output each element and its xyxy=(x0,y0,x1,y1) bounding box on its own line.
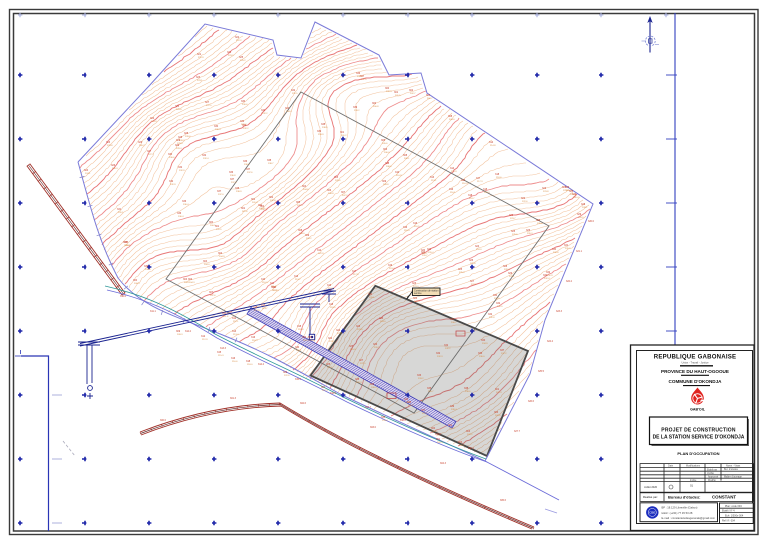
svg-text:Bureau d'études:: Bureau d'études: xyxy=(668,495,701,500)
svg-text:200.8: 200.8 xyxy=(373,106,379,108)
svg-text:238.6: 238.6 xyxy=(465,391,471,393)
svg-text:222.2: 222.2 xyxy=(236,40,242,42)
svg-text:227.5: 227.5 xyxy=(206,105,212,107)
svg-text:302: 302 xyxy=(409,89,414,92)
svg-text:329: 329 xyxy=(577,213,582,216)
svg-text:326: 326 xyxy=(111,164,116,167)
svg-text:325: 325 xyxy=(511,230,516,233)
svg-text:325.5: 325.5 xyxy=(538,370,545,373)
svg-text:320: 320 xyxy=(368,293,373,296)
svg-text:332: 332 xyxy=(202,154,207,157)
svg-text:314: 314 xyxy=(489,141,494,144)
svg-text:305: 305 xyxy=(334,176,339,179)
svg-text:315: 315 xyxy=(217,351,222,354)
svg-text:301: 301 xyxy=(436,438,441,441)
svg-text:330: 330 xyxy=(370,383,375,386)
svg-text:238.7: 238.7 xyxy=(268,163,274,165)
svg-text:203.8: 203.8 xyxy=(495,415,501,417)
svg-text:PLAN D'OCCUPATION: PLAN D'OCCUPATION xyxy=(677,451,719,456)
svg-text:222.6: 222.6 xyxy=(284,375,290,377)
svg-text:312: 312 xyxy=(232,317,237,320)
svg-text:237.7: 237.7 xyxy=(422,413,428,415)
svg-text:235.7: 235.7 xyxy=(428,391,434,393)
svg-text:310: 310 xyxy=(395,171,400,174)
svg-text:222.7: 222.7 xyxy=(337,333,343,335)
svg-text:309: 309 xyxy=(382,180,387,183)
svg-text:Ref N°: 004: Ref N°: 004 xyxy=(722,520,736,523)
svg-text:324: 324 xyxy=(475,245,480,248)
svg-text:231.1: 231.1 xyxy=(118,212,124,214)
svg-text:318: 318 xyxy=(246,360,251,363)
svg-text:216.3: 216.3 xyxy=(252,340,258,342)
svg-text:227.7: 227.7 xyxy=(148,154,154,156)
svg-text:313: 313 xyxy=(294,275,299,278)
svg-text:309: 309 xyxy=(176,330,181,333)
svg-text:323: 323 xyxy=(542,187,547,190)
svg-text:336: 336 xyxy=(177,212,182,215)
svg-text:303: 303 xyxy=(458,441,463,444)
svg-text:228.3: 228.3 xyxy=(356,382,362,384)
svg-text:324: 324 xyxy=(379,317,384,320)
svg-text:316: 316 xyxy=(403,226,408,229)
svg-text:Etabli: N° 4: Etabli: N° 4 xyxy=(722,510,735,513)
svg-text:209.2: 209.2 xyxy=(306,238,312,240)
svg-text:336: 336 xyxy=(243,160,248,163)
svg-text:213.7: 213.7 xyxy=(262,308,268,310)
svg-text:334: 334 xyxy=(285,107,290,110)
svg-text:220.1: 220.1 xyxy=(369,297,375,299)
svg-text:225.1: 225.1 xyxy=(327,367,333,369)
svg-text:223.7: 223.7 xyxy=(510,218,516,220)
svg-text:319.0: 319.0 xyxy=(435,433,442,436)
svg-text:325: 325 xyxy=(175,105,180,108)
svg-text:304: 304 xyxy=(188,278,193,281)
svg-text:335: 335 xyxy=(381,416,386,419)
svg-text:339: 339 xyxy=(317,130,322,133)
svg-text:REPUBLIQUE GABONAISE: REPUBLIQUE GABONAISE xyxy=(654,354,737,361)
svg-text:201.5: 201.5 xyxy=(449,428,455,430)
svg-text:235.0: 235.0 xyxy=(124,245,130,247)
svg-text:Plan: code 004: Plan: code 004 xyxy=(725,505,742,508)
svg-text:225.6: 225.6 xyxy=(512,234,518,236)
svg-text:Union - Travail - Justice: Union - Travail - Justice xyxy=(681,360,709,364)
svg-text:204.3: 204.3 xyxy=(189,282,195,284)
svg-text:304: 304 xyxy=(218,252,223,255)
svg-text:239.0: 239.0 xyxy=(145,269,151,271)
svg-text:216.1: 216.1 xyxy=(450,192,456,194)
svg-text:323: 323 xyxy=(196,76,201,79)
svg-text:225.9: 225.9 xyxy=(570,194,576,196)
svg-text:218.8: 218.8 xyxy=(298,329,304,331)
svg-text:312: 312 xyxy=(272,286,277,289)
svg-text:222.6: 222.6 xyxy=(522,201,528,203)
svg-text:311: 311 xyxy=(270,282,275,285)
svg-text:service: service xyxy=(414,292,422,295)
svg-text:235.4: 235.4 xyxy=(382,420,388,422)
svg-text:GAB'OIL: GAB'OIL xyxy=(690,408,706,412)
svg-text:332: 332 xyxy=(444,344,449,347)
svg-text:332: 332 xyxy=(261,109,266,112)
svg-text:325: 325 xyxy=(469,259,474,262)
svg-text:323.3: 323.3 xyxy=(556,310,563,313)
svg-text:230.7: 230.7 xyxy=(451,322,457,324)
svg-text:320: 320 xyxy=(427,248,432,251)
svg-text:230.4: 230.4 xyxy=(215,129,221,131)
svg-text:316: 316 xyxy=(413,222,418,225)
svg-text:330: 330 xyxy=(241,100,246,103)
svg-text:238.9: 238.9 xyxy=(236,191,242,193)
svg-text:325: 325 xyxy=(326,363,331,366)
svg-text:301.3: 301.3 xyxy=(230,397,237,400)
svg-text:CONSTANT: CONSTANT xyxy=(712,495,736,500)
svg-text:213.1: 213.1 xyxy=(431,180,437,182)
svg-text:219.4: 219.4 xyxy=(389,268,395,270)
svg-text:301: 301 xyxy=(394,91,399,94)
svg-text:318: 318 xyxy=(329,303,334,306)
svg-text:227.5: 227.5 xyxy=(360,363,366,365)
svg-text:221.9: 221.9 xyxy=(198,57,204,59)
svg-text:237.0: 237.0 xyxy=(218,194,224,196)
svg-text:226.3: 226.3 xyxy=(527,233,533,235)
svg-text:338: 338 xyxy=(464,387,469,390)
svg-text:231.2: 231.2 xyxy=(565,248,571,250)
svg-text:228.4: 228.4 xyxy=(504,269,510,271)
svg-text:201.4: 201.4 xyxy=(252,202,258,204)
svg-text:Maître d'ouvrage: Maître d'ouvrage xyxy=(724,475,743,478)
svg-text:339: 339 xyxy=(144,265,149,268)
svg-text:224.9: 224.9 xyxy=(414,301,420,303)
svg-text:314: 314 xyxy=(450,167,455,170)
svg-text:223.8: 223.8 xyxy=(543,191,549,193)
svg-text:232.5: 232.5 xyxy=(292,93,298,95)
svg-text:316: 316 xyxy=(231,357,236,360)
svg-text:201.3: 201.3 xyxy=(496,392,502,394)
svg-text:330: 330 xyxy=(450,318,455,321)
svg-text:220.1: 220.1 xyxy=(296,350,302,352)
svg-text:324.4: 324.4 xyxy=(547,340,554,343)
svg-text:205.0: 205.0 xyxy=(297,205,303,207)
svg-text:320.0: 320.0 xyxy=(588,220,595,223)
svg-text:Modifié: Modifié xyxy=(708,479,716,482)
svg-text:332: 332 xyxy=(169,180,174,183)
svg-text:E-mail : constantetudesgeneral: E-mail : constantetudesgenerale@gmail.co… xyxy=(662,516,716,520)
svg-text:322: 322 xyxy=(328,337,333,340)
svg-text:223.0: 223.0 xyxy=(357,329,363,331)
svg-text:326: 326 xyxy=(373,343,378,346)
svg-text:328: 328 xyxy=(184,132,189,135)
svg-text:206.0: 206.0 xyxy=(384,152,390,154)
svg-text:308: 308 xyxy=(448,115,453,118)
svg-text:332: 332 xyxy=(496,302,501,305)
svg-text:338: 338 xyxy=(267,159,272,162)
svg-text:302.6: 302.6 xyxy=(300,402,307,405)
svg-text:BP : 18.129 Libreville (Gabo: BP : 18.129 Libreville (Gabon) xyxy=(662,505,698,509)
svg-text:217.3: 217.3 xyxy=(477,181,483,183)
svg-text:326: 326 xyxy=(526,229,531,232)
svg-text:202.7: 202.7 xyxy=(410,93,416,95)
svg-text:Date: Date xyxy=(668,465,674,468)
svg-text:214.8: 214.8 xyxy=(490,145,496,147)
svg-text:232.9: 232.9 xyxy=(170,184,176,186)
svg-text:324: 324 xyxy=(150,117,155,120)
svg-text:208.0: 208.0 xyxy=(449,119,455,121)
svg-text:224.1: 224.1 xyxy=(85,173,91,175)
svg-text:316.6: 316.6 xyxy=(330,392,337,395)
svg-text:331: 331 xyxy=(564,244,569,247)
svg-text:300: 300 xyxy=(385,87,390,90)
svg-text:Vérifié: Vérifié xyxy=(707,472,714,475)
svg-text:331: 331 xyxy=(117,208,122,211)
svg-text:212.9: 212.9 xyxy=(202,339,208,341)
svg-text:207.2: 207.2 xyxy=(342,195,348,197)
svg-text:300: 300 xyxy=(372,102,377,105)
svg-text:335: 335 xyxy=(427,387,432,390)
svg-text:320: 320 xyxy=(308,336,313,339)
svg-text:323: 323 xyxy=(227,51,232,54)
svg-text:229.0: 229.0 xyxy=(177,143,183,145)
svg-text:224.9: 224.9 xyxy=(151,121,157,123)
svg-text:330: 330 xyxy=(214,125,219,128)
svg-text:322.2: 322.2 xyxy=(566,280,573,283)
svg-text:230.6: 230.6 xyxy=(242,104,248,106)
svg-text:318: 318 xyxy=(483,188,488,191)
svg-text:338: 338 xyxy=(235,187,240,190)
svg-text:236.5: 236.5 xyxy=(357,76,363,78)
svg-text:304.3: 304.3 xyxy=(440,462,447,465)
svg-text:316: 316 xyxy=(251,336,256,339)
svg-text:232.8: 232.8 xyxy=(489,317,495,319)
svg-text:330: 330 xyxy=(552,248,557,251)
svg-text:327: 327 xyxy=(205,101,210,104)
svg-text:237.5: 237.5 xyxy=(361,79,367,81)
svg-text:Juillet 2020: Juillet 2020 xyxy=(644,485,658,489)
svg-text:302: 302 xyxy=(260,205,265,208)
svg-text:202.9: 202.9 xyxy=(261,209,267,211)
svg-text:234.7: 234.7 xyxy=(405,402,411,404)
svg-text:206.8: 206.8 xyxy=(328,193,334,195)
svg-text:226.4: 226.4 xyxy=(573,197,579,199)
svg-text:218.4: 218.4 xyxy=(484,192,490,194)
svg-text:330: 330 xyxy=(168,153,173,156)
svg-text:225.2: 225.2 xyxy=(240,60,246,62)
svg-text:332: 332 xyxy=(240,120,245,123)
svg-text:200.0: 200.0 xyxy=(134,283,140,285)
svg-text:Noms - Visas: Noms - Visas xyxy=(726,464,741,467)
svg-text:318: 318 xyxy=(297,325,302,328)
svg-text:223.2: 223.2 xyxy=(228,55,234,57)
svg-text:224.0: 224.0 xyxy=(476,249,482,251)
svg-text:324: 324 xyxy=(413,297,418,300)
svg-text:320: 320 xyxy=(421,251,426,254)
svg-text:229.4: 229.4 xyxy=(176,148,182,150)
svg-text:308: 308 xyxy=(403,154,408,157)
svg-text:326.6: 326.6 xyxy=(528,400,535,403)
svg-text:209.8: 209.8 xyxy=(383,184,389,186)
svg-text:210.3: 210.3 xyxy=(262,282,268,284)
svg-text:208.1: 208.1 xyxy=(404,158,410,160)
svg-text:237.9: 237.9 xyxy=(231,182,237,184)
svg-text:Modifications: Modifications xyxy=(686,465,701,468)
svg-text:339: 339 xyxy=(450,405,455,408)
svg-text:312.2: 312.2 xyxy=(185,330,192,333)
svg-text:208.6: 208.6 xyxy=(386,166,392,168)
svg-text:313: 313 xyxy=(430,176,435,179)
svg-text:228.6: 228.6 xyxy=(185,136,191,138)
svg-text:325: 325 xyxy=(239,56,244,59)
svg-text:229.0: 229.0 xyxy=(578,217,584,219)
svg-text:204.7: 204.7 xyxy=(427,98,433,100)
svg-text:318: 318 xyxy=(495,173,500,176)
svg-text:300: 300 xyxy=(133,279,138,282)
svg-text:335: 335 xyxy=(123,241,128,244)
svg-text:236.6: 236.6 xyxy=(244,164,250,166)
svg-text:207.6: 207.6 xyxy=(210,295,216,297)
svg-text:301: 301 xyxy=(215,225,220,228)
svg-text:215.3: 215.3 xyxy=(218,355,224,357)
svg-text:327.7: 327.7 xyxy=(514,430,521,433)
svg-text:216.2: 216.2 xyxy=(328,288,334,290)
svg-text:329: 329 xyxy=(508,272,513,275)
svg-text:303: 303 xyxy=(466,430,471,433)
svg-text:DE LA STATION SERVICE D'OKONDJ: DE LA STATION SERVICE D'OKONDJA xyxy=(653,435,745,441)
svg-text:203.2: 203.2 xyxy=(467,434,473,436)
svg-text:313: 313 xyxy=(261,304,266,307)
svg-text:327: 327 xyxy=(147,150,152,153)
svg-text:305.6: 305.6 xyxy=(500,499,507,502)
svg-text:336: 336 xyxy=(182,200,187,203)
svg-text:332: 332 xyxy=(178,166,183,169)
svg-text:327: 327 xyxy=(359,359,364,362)
svg-text:320: 320 xyxy=(295,346,300,349)
svg-text:325: 325 xyxy=(349,345,354,348)
svg-text:300.0: 300.0 xyxy=(160,419,167,422)
svg-text:337: 337 xyxy=(500,349,505,352)
svg-text:332: 332 xyxy=(543,274,548,277)
svg-text:321.1: 321.1 xyxy=(576,250,583,253)
svg-text:307: 307 xyxy=(341,191,346,194)
svg-text:307: 307 xyxy=(209,291,214,294)
svg-text:225.9: 225.9 xyxy=(350,349,356,351)
svg-text:301: 301 xyxy=(241,207,246,210)
svg-text:217.5: 217.5 xyxy=(353,274,359,276)
svg-text:PROVINCE DU HAUT-OGOOUE: PROVINCE DU HAUT-OGOOUE xyxy=(661,369,729,374)
svg-text:337: 337 xyxy=(421,409,426,412)
svg-text:312: 312 xyxy=(201,335,206,338)
svg-text:326: 326 xyxy=(138,141,143,144)
svg-text:323: 323 xyxy=(356,325,361,328)
svg-text:301: 301 xyxy=(340,131,345,134)
svg-text:339: 339 xyxy=(353,106,358,109)
svg-text:337: 337 xyxy=(217,190,222,193)
svg-text:214.9: 214.9 xyxy=(451,171,457,173)
svg-text:300: 300 xyxy=(209,221,214,224)
svg-text:305: 305 xyxy=(296,201,301,204)
svg-text:336: 336 xyxy=(356,72,361,75)
svg-text:213.4: 213.4 xyxy=(233,334,239,336)
svg-text:332: 332 xyxy=(291,89,296,92)
svg-text:319: 319 xyxy=(388,264,393,267)
svg-text:317: 317 xyxy=(352,270,357,273)
svg-text:234.9: 234.9 xyxy=(482,343,488,345)
svg-text:317: 317 xyxy=(476,177,481,180)
svg-text:213.9: 213.9 xyxy=(254,310,260,312)
svg-text:téléd : (+241) 77 45 53 28: téléd : (+241) 77 45 53 28 xyxy=(662,511,693,515)
svg-text:223.1: 223.1 xyxy=(197,80,203,82)
svg-text:232.2: 232.2 xyxy=(243,128,249,130)
svg-text:237.2: 237.2 xyxy=(501,353,507,355)
svg-text:239.9: 239.9 xyxy=(318,134,324,136)
svg-text:232.2: 232.2 xyxy=(262,113,268,115)
svg-text:317.7: 317.7 xyxy=(365,406,372,409)
svg-text:200.3: 200.3 xyxy=(386,91,392,93)
svg-text:316: 316 xyxy=(461,179,466,182)
svg-text:216.6: 216.6 xyxy=(232,361,238,363)
svg-text:201.3: 201.3 xyxy=(437,442,443,444)
svg-text:225.9: 225.9 xyxy=(459,272,465,274)
svg-text:301: 301 xyxy=(448,424,453,427)
svg-text:322: 322 xyxy=(521,197,526,200)
svg-text:236.0: 236.0 xyxy=(479,356,485,358)
svg-text:220.7: 220.7 xyxy=(422,255,428,257)
svg-text:313: 313 xyxy=(253,306,258,309)
svg-text:232.9: 232.9 xyxy=(547,275,553,277)
svg-text:201.6: 201.6 xyxy=(242,211,248,213)
svg-text:204.6: 204.6 xyxy=(303,189,309,191)
svg-text:316: 316 xyxy=(327,284,332,287)
svg-text:325: 325 xyxy=(565,186,570,189)
svg-text:322: 322 xyxy=(235,36,240,39)
svg-text:324: 324 xyxy=(84,169,89,172)
svg-text:327: 327 xyxy=(321,386,326,389)
svg-text:313.3: 313.3 xyxy=(220,347,227,350)
svg-text:332: 332 xyxy=(242,124,247,127)
svg-text:237.6: 237.6 xyxy=(247,172,253,174)
svg-text:218.6: 218.6 xyxy=(496,177,502,179)
svg-text:310: 310 xyxy=(261,278,266,281)
svg-text:333: 333 xyxy=(417,374,422,377)
svg-text:325: 325 xyxy=(458,268,463,271)
svg-text:236.4: 236.4 xyxy=(183,204,189,206)
svg-text:205.6: 205.6 xyxy=(335,180,341,182)
svg-text:226.1: 226.1 xyxy=(374,347,380,349)
svg-text:218.0: 218.0 xyxy=(247,364,253,366)
svg-text:232.3: 232.3 xyxy=(437,356,443,358)
svg-text:225.8: 225.8 xyxy=(470,263,476,265)
svg-text:Réalisé par:: Réalisé par: xyxy=(643,495,658,499)
svg-text:216.0: 216.0 xyxy=(404,230,410,232)
svg-text:212.1: 212.1 xyxy=(233,321,239,323)
svg-text:01: 01 xyxy=(690,484,694,488)
svg-text:312: 312 xyxy=(317,249,322,252)
svg-text:218.7: 218.7 xyxy=(469,198,475,200)
svg-text:201.5: 201.5 xyxy=(395,95,401,97)
svg-text:220.9: 220.9 xyxy=(309,340,315,342)
svg-text:226.3: 226.3 xyxy=(112,168,118,170)
svg-text:232.5: 232.5 xyxy=(497,306,503,308)
svg-text:337: 337 xyxy=(230,178,235,181)
svg-text:202.8: 202.8 xyxy=(270,200,276,202)
svg-text:232.9: 232.9 xyxy=(179,170,185,172)
svg-text:Indice: Indice xyxy=(690,479,697,482)
svg-text:322: 322 xyxy=(336,329,341,332)
svg-text:304: 304 xyxy=(203,260,208,263)
svg-text:230.5: 230.5 xyxy=(494,298,500,300)
svg-text:301: 301 xyxy=(251,198,256,201)
svg-text:CBE: CBE xyxy=(649,511,655,515)
svg-text:234.4: 234.4 xyxy=(286,111,292,113)
svg-text:304: 304 xyxy=(302,185,307,188)
svg-text:303.0: 303.0 xyxy=(370,426,377,429)
